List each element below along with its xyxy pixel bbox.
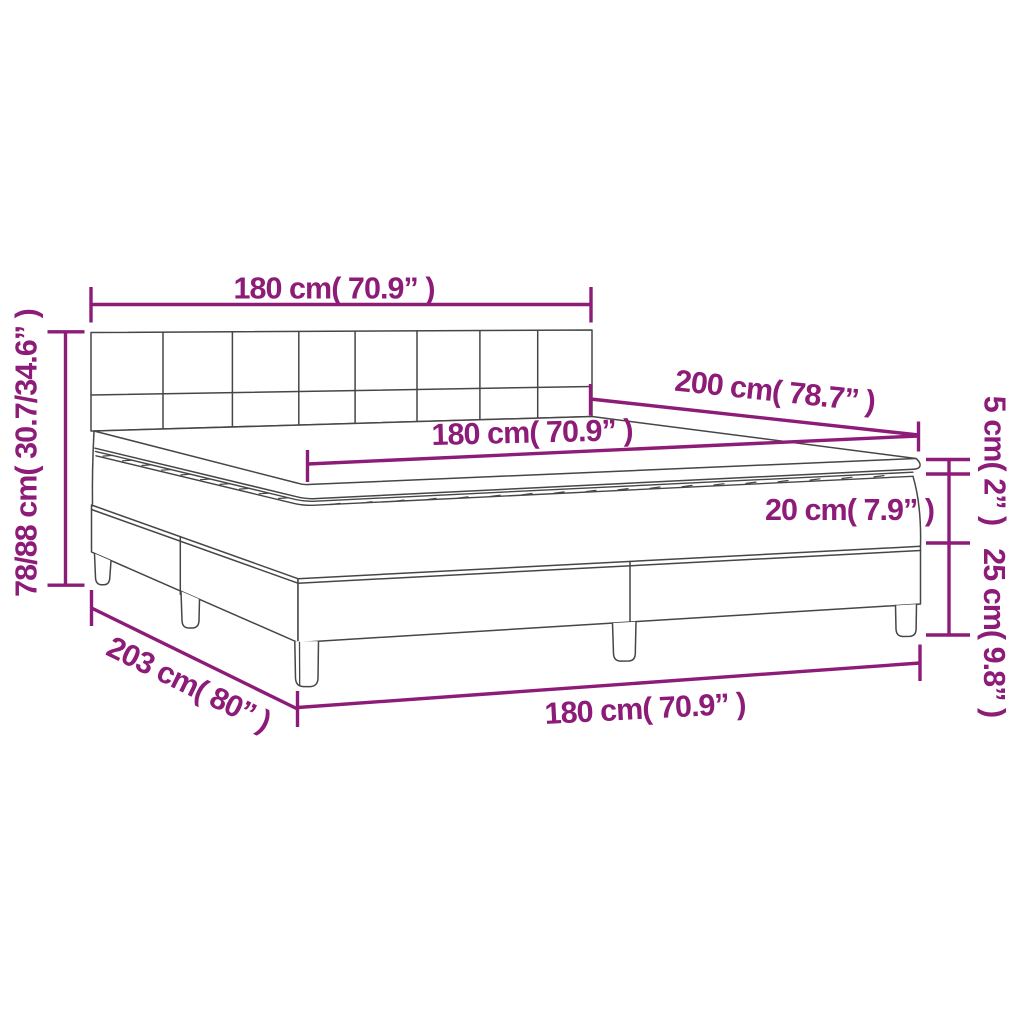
svg-text:5 cm( 2” ): 5 cm( 2” ) xyxy=(978,396,1012,526)
svg-text:180 cm( 70.9” ): 180 cm( 70.9” ) xyxy=(233,272,434,306)
svg-text:78/88 cm( 30.7/34.6” ): 78/88 cm( 30.7/34.6” ) xyxy=(10,309,44,597)
svg-text:180 cm( 70.9” ): 180 cm( 70.9” ) xyxy=(431,413,633,452)
svg-text:20 cm( 7.9” ): 20 cm( 7.9” ) xyxy=(765,493,934,527)
svg-text:25 cm( 9.8” ): 25 cm( 9.8” ) xyxy=(977,548,1011,717)
